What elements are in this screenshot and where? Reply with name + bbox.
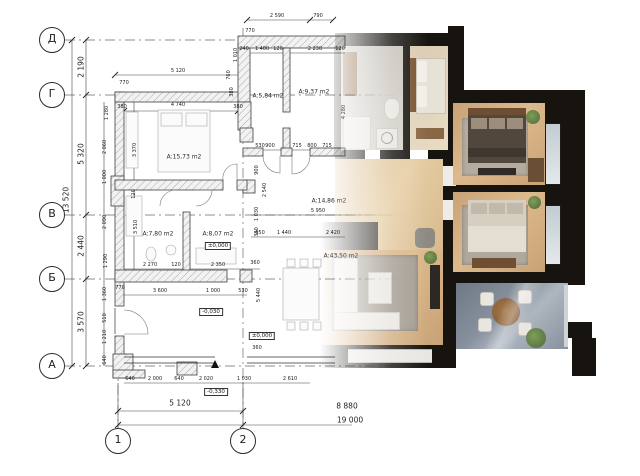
- render-tv-console: [430, 265, 440, 309]
- render-bathtub: [343, 116, 371, 150]
- render-bedroom2-dresser: [472, 258, 516, 268]
- render-washer-drum: [381, 132, 393, 144]
- render-wall-top: [335, 33, 463, 46]
- render-terrace-rail: [564, 285, 568, 347]
- render-coffee-table: [368, 272, 392, 304]
- render-wall-parapet: [448, 26, 464, 98]
- render-bedroom-top-pillow-2: [417, 86, 427, 107]
- render-wall-terrace-step-2: [572, 338, 596, 376]
- render-sofa-horizontal: [334, 312, 400, 330]
- render-bedroom2-blanket: [468, 226, 526, 252]
- render-bedroom2-pillow-2: [489, 203, 505, 214]
- render-bedroom2-window: [545, 205, 561, 265]
- render-toilet: [384, 98, 400, 120]
- render-bedroom1-plant: [526, 110, 540, 124]
- render-wall-hall-1: [335, 150, 365, 159]
- render-bedroom1-headboard: [468, 108, 526, 115]
- render-bedroom1-throw: [468, 148, 526, 157]
- render-wall-divider: [403, 46, 410, 156]
- render-wall-bath-left: [334, 46, 341, 156]
- render-bedroom-top-pillow-1: [417, 61, 427, 82]
- render-terrace-light: [456, 283, 568, 349]
- floor-plan-image: 2 5907907702401 4001202 2301201 01076038…: [0, 0, 640, 476]
- entry-arrow: [211, 360, 219, 368]
- render-hall-armchair: [415, 228, 435, 248]
- render-bedroom2-pillow-3: [507, 203, 523, 214]
- render-living-windows: [348, 349, 432, 363]
- render-bedroom1-bench: [478, 168, 516, 175]
- render-kitchen-counter: [320, 222, 378, 250]
- render-bedroom2-pillow-1: [471, 203, 487, 214]
- render-bathroom-vanity: [343, 52, 357, 96]
- walls: [111, 36, 345, 378]
- render-bedroom2-plant: [528, 196, 541, 209]
- render-bedroom1-pillow-1: [471, 118, 487, 129]
- furniture-drawing: [126, 110, 321, 330]
- render-wall-hall-2: [380, 150, 410, 159]
- render-living-plant: [424, 251, 437, 264]
- render-bedroom1-pillow-3: [507, 118, 523, 129]
- render-bedroom1-desk: [528, 158, 544, 182]
- render-bedroom1-pillow-2: [489, 118, 505, 129]
- render-half: [320, 0, 640, 476]
- render-bedroom1-window: [545, 123, 561, 185]
- render-bedroom-top-shelf: [416, 128, 444, 139]
